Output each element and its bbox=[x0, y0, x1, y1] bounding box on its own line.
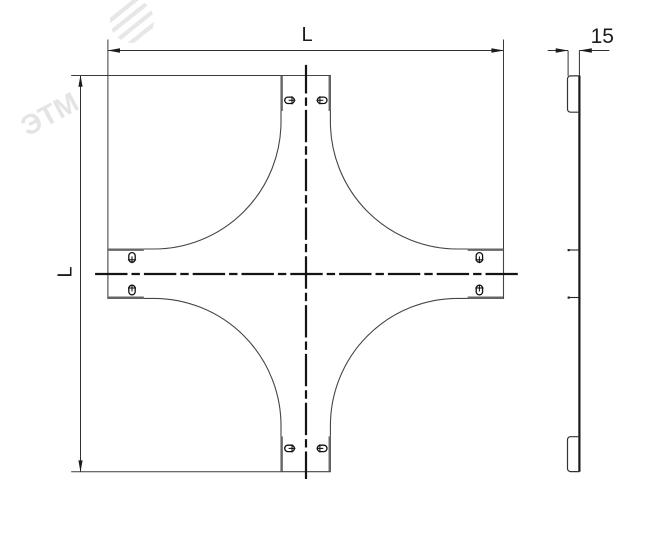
svg-text:ЭТМ: ЭТМ bbox=[16, 86, 84, 142]
svg-text:15: 15 bbox=[591, 25, 614, 48]
svg-text:L: L bbox=[55, 266, 77, 277]
svg-text:L: L bbox=[301, 24, 312, 46]
